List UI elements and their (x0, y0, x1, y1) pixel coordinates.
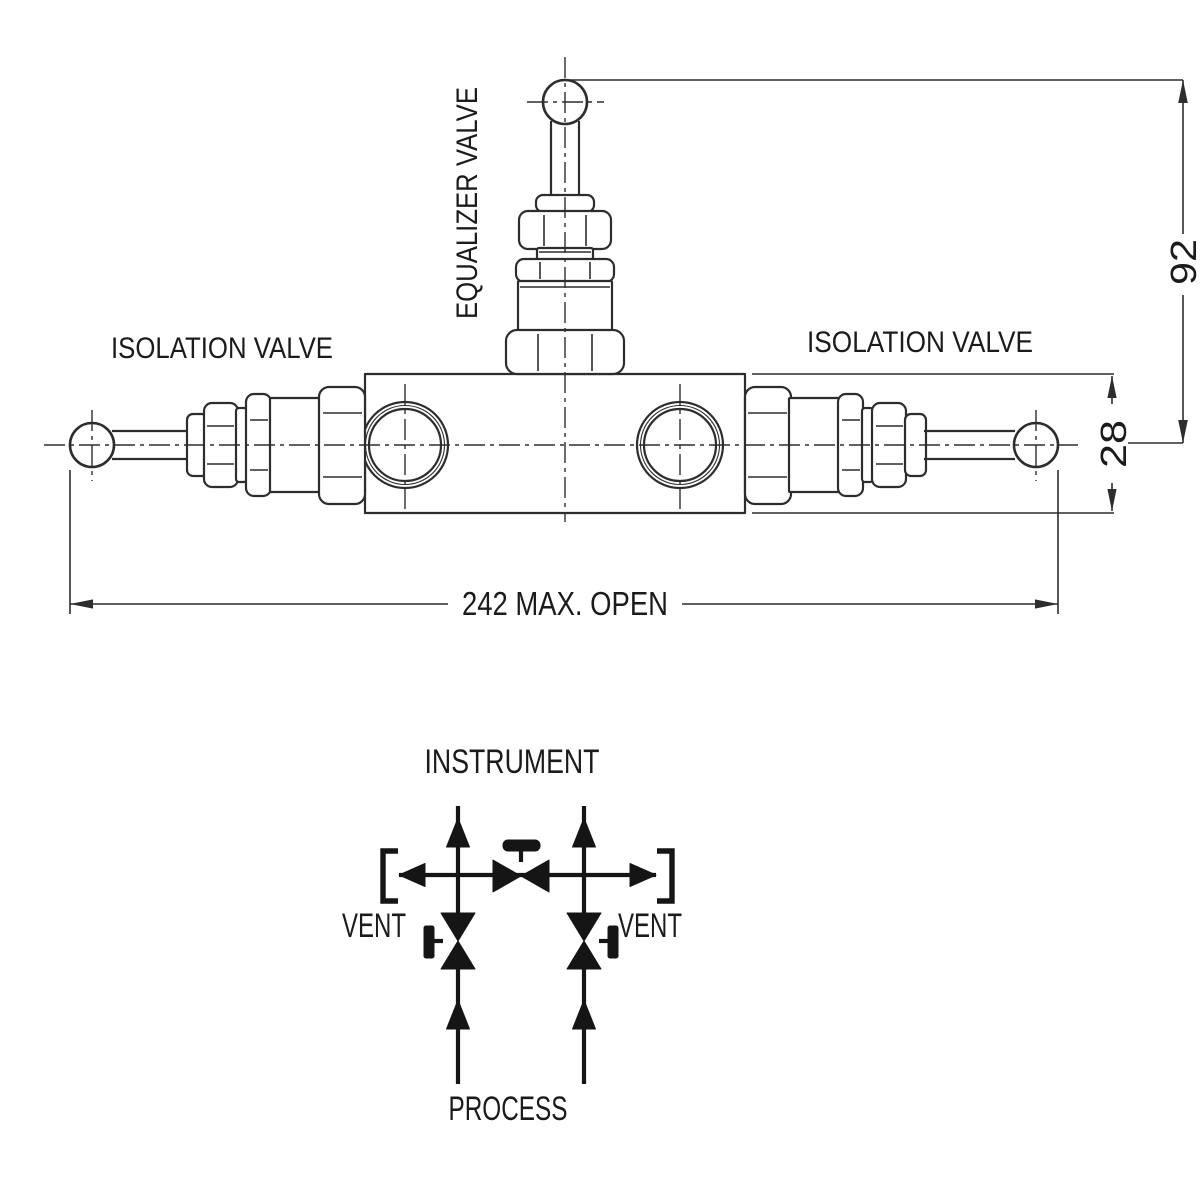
vent-arrow-right (630, 864, 656, 887)
dim-242-max-open-text: 242 MAX. OPEN (462, 585, 668, 622)
equalizer-valve-symbol (493, 840, 549, 892)
isolation-valve-right-label: ISOLATION VALVE (807, 326, 1033, 359)
three-valve-manifold-page: 92 28 242 MAX. OPEN ISOLATION VALVE ISOL… (0, 0, 1200, 1200)
process-arrow-right (573, 1000, 596, 1029)
vent-arrow-left (399, 864, 425, 887)
process-label: PROCESS (449, 1090, 568, 1128)
dim-92-text: 92 (1163, 239, 1200, 285)
dim-28-text: 28 (1093, 420, 1134, 468)
manifold-body (362, 374, 745, 513)
process-arrow-left (447, 1000, 470, 1029)
isolation-valve-left-label: ISOLATION VALVE (111, 332, 333, 365)
three-valve-manifold-diagram: 92 28 242 MAX. OPEN ISOLATION VALVE ISOL… (0, 0, 1200, 1200)
flow-schematic: INSTRUMENT VENT VENT PROCESS (342, 743, 682, 1128)
isolation-valve-symbol-left (424, 913, 475, 969)
dimensioned-assembly-drawing: 92 28 242 MAX. OPEN ISOLATION VALVE ISOL… (44, 57, 1200, 622)
vent-bracket-left (383, 851, 398, 901)
isolation-valve-symbol-right (567, 913, 618, 969)
vent-right-label: VENT (618, 907, 682, 945)
vent-left-label: VENT (342, 907, 406, 945)
instrument-label: INSTRUMENT (425, 743, 600, 781)
equalizer-valve-label: EQUALIZER VALVE (451, 87, 484, 319)
instrument-arrow-right (573, 818, 596, 847)
vent-bracket-right (657, 851, 672, 901)
instrument-arrow-left (447, 818, 470, 847)
